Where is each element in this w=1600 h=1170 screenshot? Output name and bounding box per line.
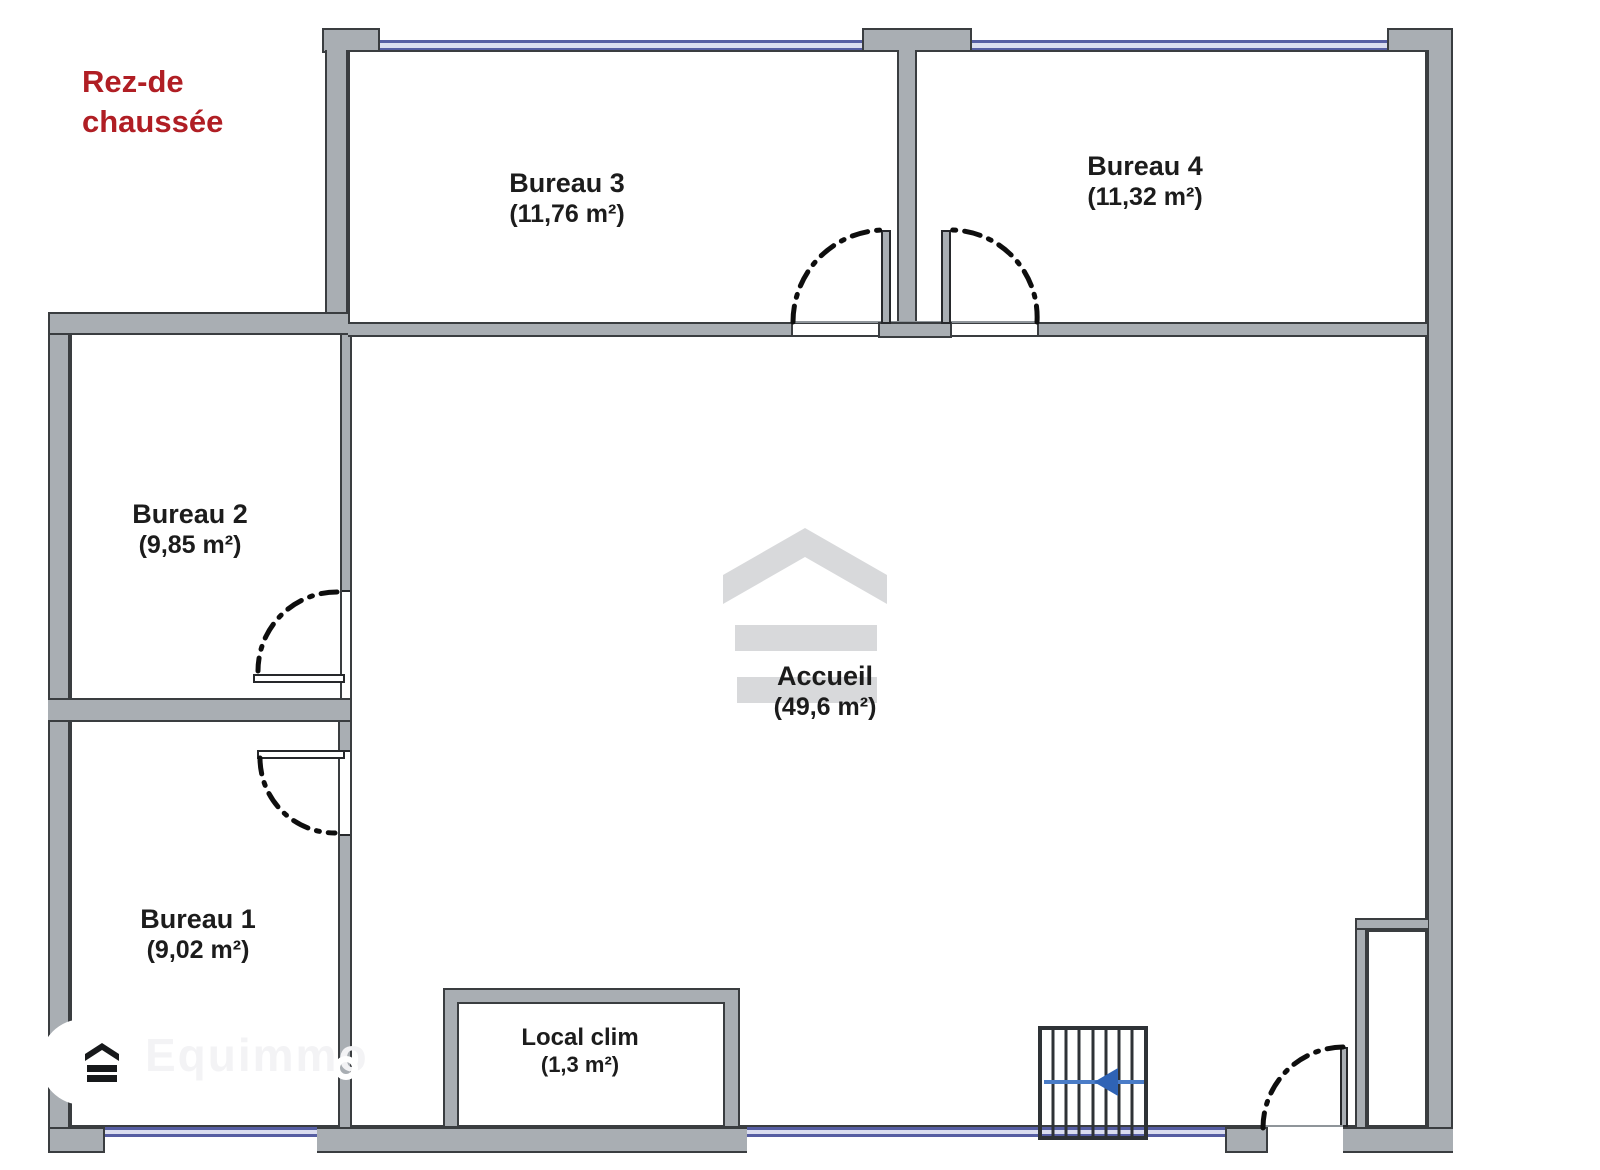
label-local-clim: Local clim (1,3 m²) [521,1024,638,1078]
label-accueil: Accueil (49,6 m²) [774,660,877,722]
door-arcs [0,0,1600,1170]
label-bureau-3: Bureau 3 (11,76 m²) [509,167,625,229]
door-arc-bureau3 [793,230,885,322]
room-area: (11,76 m²) [509,199,625,229]
door-arc-bottom-right [1263,1047,1343,1128]
room-name: Bureau 3 [509,167,625,199]
floor-title: Rez-de chaussée [82,62,223,142]
room-area: (49,6 m²) [774,692,877,722]
label-bureau-4: Bureau 4 (11,32 m²) [1087,150,1203,212]
room-name: Bureau 4 [1087,150,1203,182]
door-arc-bureau2 [258,592,337,671]
room-area: (9,02 m²) [140,935,256,965]
label-bureau-1: Bureau 1 (9,02 m²) [140,903,256,965]
floor-title-line2: chaussée [82,102,223,142]
room-area: (9,85 m²) [132,530,248,560]
room-name: Bureau 1 [140,903,256,935]
door-arc-bureau4 [950,230,1037,322]
floor-title-line1: Rez-de [82,62,223,102]
room-area: (1,3 m²) [521,1052,638,1078]
room-name: Accueil [774,660,877,692]
room-area: (11,32 m²) [1087,182,1203,212]
floor-plan: Equimmo Rez-de chaussée Bure [0,0,1600,1170]
room-name: Local clim [521,1024,638,1052]
door-arc-bureau1 [260,758,335,833]
label-bureau-2: Bureau 2 (9,85 m²) [132,498,248,560]
room-name: Bureau 2 [132,498,248,530]
